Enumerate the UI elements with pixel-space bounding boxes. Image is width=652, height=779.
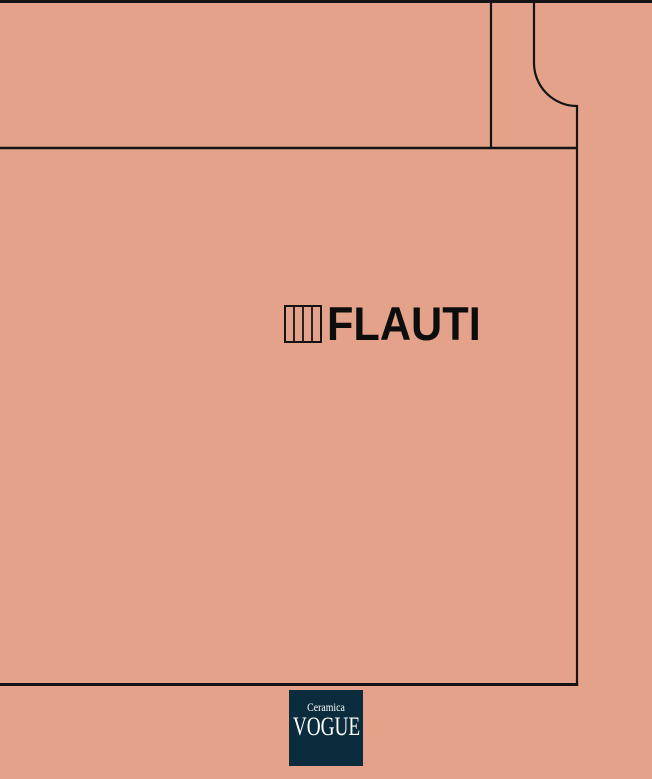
vertical-bars-tile-icon <box>284 305 322 343</box>
catalog-cover: { "cover": { "series_title": "FLAUTI" },… <box>0 0 652 779</box>
brand-main-name: VOGUE <box>292 715 359 739</box>
profile-curve-line <box>534 1 577 684</box>
brand-logo: Ceramica VOGUE <box>289 690 363 766</box>
series-title: FLAUTI <box>327 305 481 343</box>
series-title-lockup: FLAUTI <box>284 304 494 344</box>
tile-profile-drawing <box>0 0 652 779</box>
